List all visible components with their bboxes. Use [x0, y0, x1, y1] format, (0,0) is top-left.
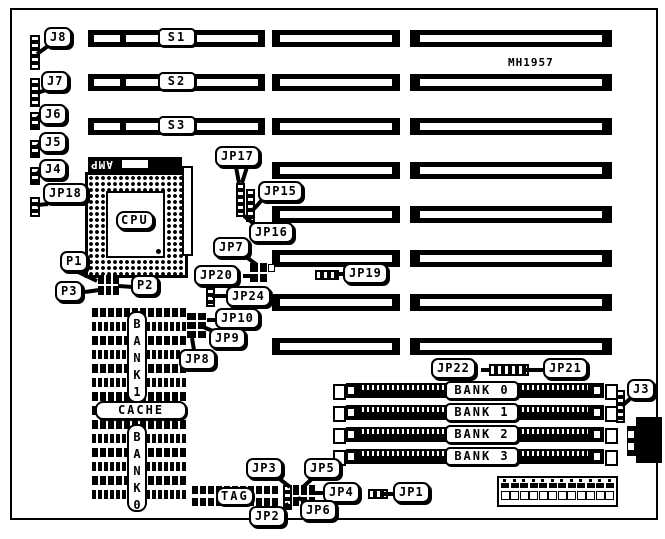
- label-jp15: JP15: [258, 181, 303, 202]
- label-jp10: JP10: [215, 308, 260, 329]
- label-jp9: JP9: [209, 328, 246, 349]
- label-jp5: JP5: [304, 458, 341, 479]
- label-j4: J4: [39, 159, 67, 180]
- label-jp19: JP19: [343, 263, 388, 284]
- label-jp3: JP3: [246, 458, 283, 479]
- motherboard-diagram: MH1957 S1 S2 S3 AMP CPU: [0, 0, 665, 539]
- label-jp20: JP20: [194, 265, 239, 286]
- label-jp24: JP24: [226, 286, 271, 307]
- label-j6: J6: [39, 104, 67, 125]
- label-jp8: JP8: [179, 349, 216, 370]
- label-p1: P1: [60, 251, 88, 272]
- label-j7: J7: [41, 71, 69, 92]
- label-j3: J3: [627, 379, 655, 400]
- label-jp6: JP6: [300, 500, 337, 521]
- label-jp2: JP2: [249, 506, 286, 527]
- label-j8: J8: [44, 27, 72, 48]
- label-jp1: JP1: [393, 482, 430, 503]
- label-p3: P3: [55, 281, 83, 302]
- label-j5: J5: [39, 132, 67, 153]
- label-jp22: JP22: [431, 358, 476, 379]
- label-jp18: JP18: [43, 183, 88, 204]
- label-jp17: JP17: [215, 146, 260, 167]
- label-jp16: JP16: [249, 222, 294, 243]
- label-jp7: JP7: [213, 237, 250, 258]
- label-p2: P2: [131, 275, 159, 296]
- label-jp21: JP21: [543, 358, 588, 379]
